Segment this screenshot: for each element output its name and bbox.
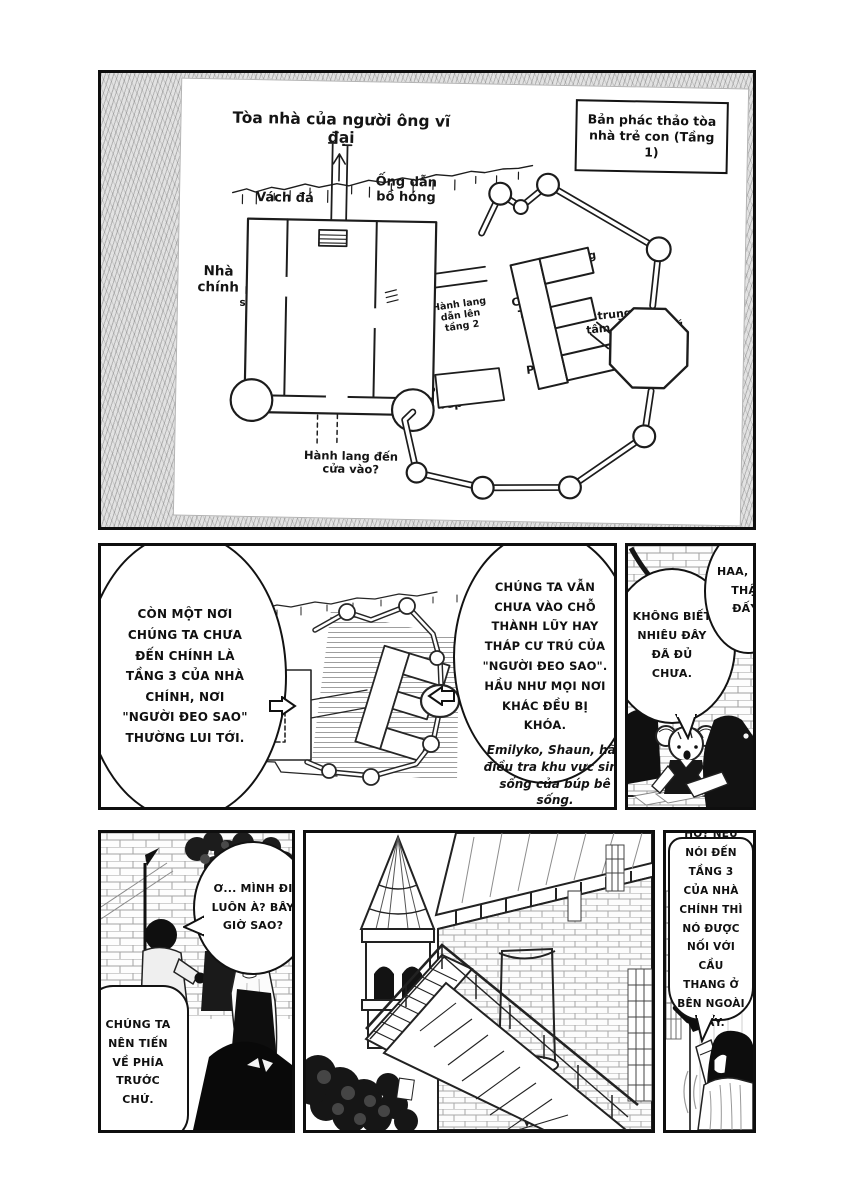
bubble-tail [183, 915, 205, 937]
map-sheet: Tòa nhà của người ông vĩ đại Bản phác th… [173, 78, 749, 527]
manga-page: Tòa nhà của người ông vĩ đại Bản phác th… [0, 0, 850, 1200]
speech-text: HAA, MỆT THẬT ĐẤY! [706, 563, 756, 620]
floorplan-drawing [174, 79, 748, 526]
speech-text: CÒN MỘT NƠI CHÚNG TA CHƯA ĐẾN CHÍNH LÀ T… [98, 604, 285, 748]
castle-art [306, 833, 652, 1130]
handwritten-caption: Emilyko, Shaun, hãy điều tra khu vực sin… [479, 742, 617, 809]
bubble-tail [674, 714, 698, 740]
point-panel: HỞ? NẾU NÓI ĐẾN TẦNG 3 CỦA NHÀ CHÍNH THÌ… [663, 830, 756, 1133]
speech-text: HỞ? NẾU NÓI ĐẾN TẦNG 3 CỦA NHÀ CHÍNH THÌ… [670, 830, 752, 1033]
arrow-pointer-icon [427, 686, 455, 706]
speech-bubble-outside-stairs: HỞ? NẾU NÓI ĐẾN TẦNG 3 CỦA NHÀ CHÍNH THÌ… [668, 837, 754, 1021]
speech-text: CHÚNG TA NÊN TIẾN VỀ PHÍA TRƯỚC CHỨ. [98, 1016, 187, 1111]
speech-text: CHÚNG TA VẪN CHƯA VÀO CHỖ THÀNH LŨY HAY … [455, 578, 617, 736]
arrow-pointer-icon [269, 696, 297, 716]
briefing-panel: CÒN MỘT NƠI CHÚNG TA CHƯA ĐẾN CHÍNH LÀ T… [98, 543, 617, 810]
map-panel: Tòa nhà của người ông vĩ đại Bản phác th… [98, 70, 756, 530]
speech-bubble-forward: CHÚNG TA NÊN TIẾN VỀ PHÍA TRƯỚC CHỨ. [98, 985, 189, 1133]
walk-panel: Ơ... MÌNH ĐI LUÔN À? BÂY GIỜ SAO? CHÚNG … [98, 830, 295, 1133]
table-panel: KHÔNG BIẾT NHIÊU ĐÂY ĐÃ ĐỦ CHƯA. HAA, MỆ… [625, 543, 756, 810]
bubble-tail [694, 1015, 716, 1043]
speech-text: Ơ... MÌNH ĐI LUÔN À? BÂY GIỜ SAO? [195, 880, 295, 937]
castle-panel [303, 830, 655, 1133]
speech-bubble-floor3: CÒN MỘT NƠI CHÚNG TA CHƯA ĐẾN CHÍNH LÀ T… [98, 543, 287, 810]
